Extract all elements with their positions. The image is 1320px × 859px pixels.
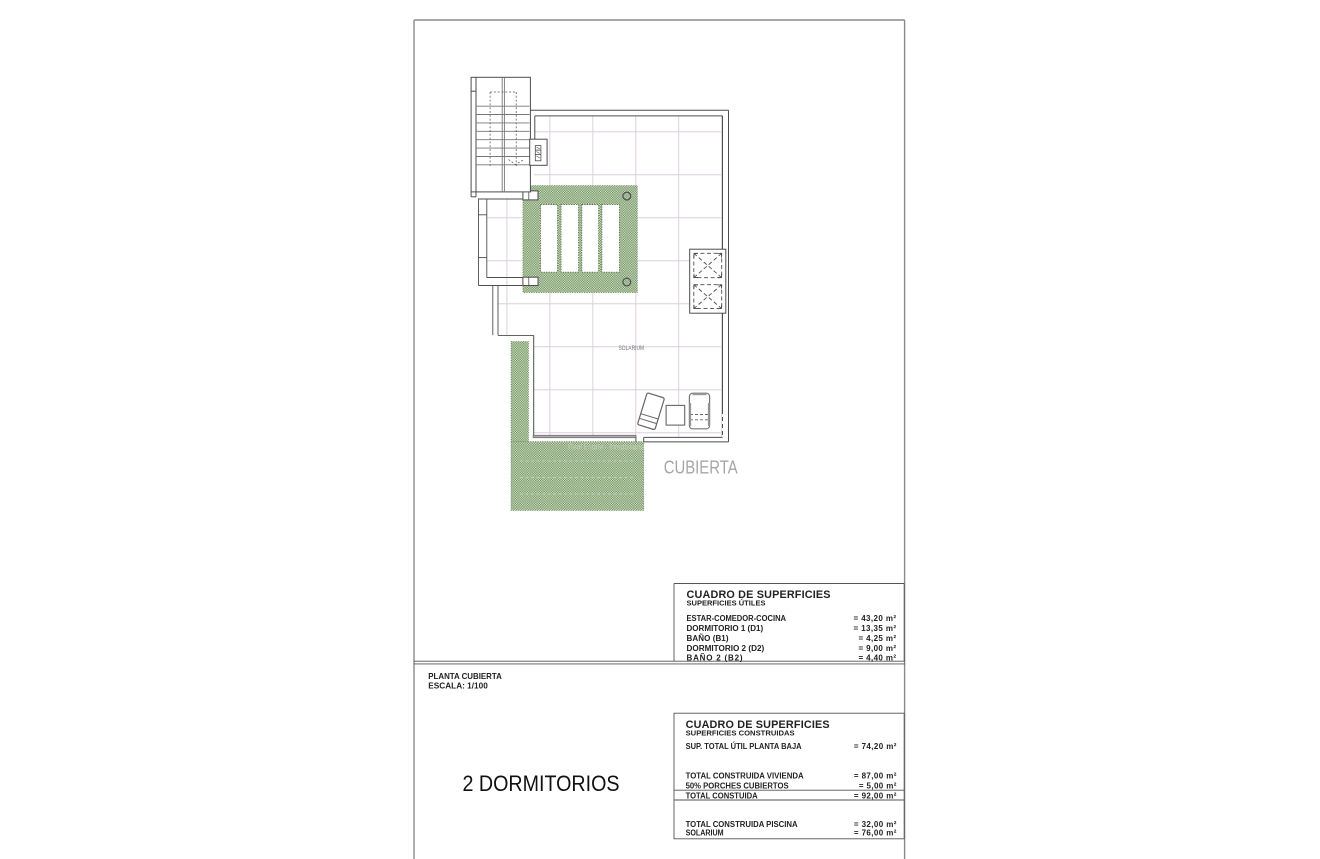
svg-text:ESTAR-COMEDOR-COCINA: ESTAR-COMEDOR-COCINA — [687, 614, 787, 623]
svg-text:SOLARIUM: SOLARIUM — [686, 829, 724, 838]
svg-text:= 4,40 m²: = 4,40 m² — [859, 653, 897, 662]
svg-text:DORMITORIO 2 (D2): DORMITORIO 2 (D2) — [687, 644, 765, 653]
svg-text:ESCALA: 1/100: ESCALA: 1/100 — [428, 682, 488, 691]
svg-text:TOTAL CONSTUIDA: TOTAL CONSTUIDA — [686, 791, 758, 800]
svg-text:= 13,35 m²: = 13,35 m² — [854, 624, 897, 633]
svg-text:Real Estate - Inmobiliaria: Real Estate - Inmobiliaria — [568, 443, 644, 452]
svg-text:PLANTA CUBIERTA: PLANTA CUBIERTA — [428, 672, 502, 681]
svg-text:DORMITORIO 1 (D1): DORMITORIO 1 (D1) — [687, 624, 764, 633]
svg-text:= 76,00 m²: = 76,00 m² — [854, 829, 897, 838]
svg-text:SUP. TOTAL ÚTIL PLANTA BAJA: SUP. TOTAL ÚTIL PLANTA BAJA — [686, 742, 802, 751]
svg-text:SUPERFICIES CONSTRUIDAS: SUPERFICIES CONSTRUIDAS — [686, 728, 795, 737]
svg-text:= 43,20 m²: = 43,20 m² — [854, 614, 897, 623]
svg-text:= 5,00 m²: = 5,00 m² — [859, 781, 897, 790]
svg-text:CUBIERTA: CUBIERTA — [664, 458, 738, 478]
svg-text:= 74,20 m²: = 74,20 m² — [854, 742, 897, 751]
svg-text:2 DORMITORIOS: 2 DORMITORIOS — [463, 771, 620, 796]
svg-text:= 32,00 m²: = 32,00 m² — [854, 820, 897, 829]
svg-text:BAÑO (B1): BAÑO (B1) — [687, 634, 729, 643]
svg-text:50% PORCHES CUBIERTOS: 50% PORCHES CUBIERTOS — [686, 781, 790, 790]
svg-text:BAÑO 2 (B2): BAÑO 2 (B2) — [687, 653, 743, 662]
svg-text:= 9,00 m²: = 9,00 m² — [859, 644, 897, 653]
svg-text:= 87,00 m²: = 87,00 m² — [854, 772, 897, 781]
svg-text:SUPERFICIES ÚTILES: SUPERFICIES ÚTILES — [687, 599, 766, 608]
svg-text:= 4,25 m²: = 4,25 m² — [859, 634, 897, 643]
svg-text:SOLARIUM: SOLARIUM — [619, 345, 645, 352]
svg-text:TOTAL CONSTRUIDA PISCINA: TOTAL CONSTRUIDA PISCINA — [686, 820, 798, 829]
svg-text:= 92,00 m²: = 92,00 m² — [854, 791, 897, 800]
svg-text:TOTAL CONSTRUIDA VIVIENDA: TOTAL CONSTRUIDA VIVIENDA — [686, 772, 804, 781]
